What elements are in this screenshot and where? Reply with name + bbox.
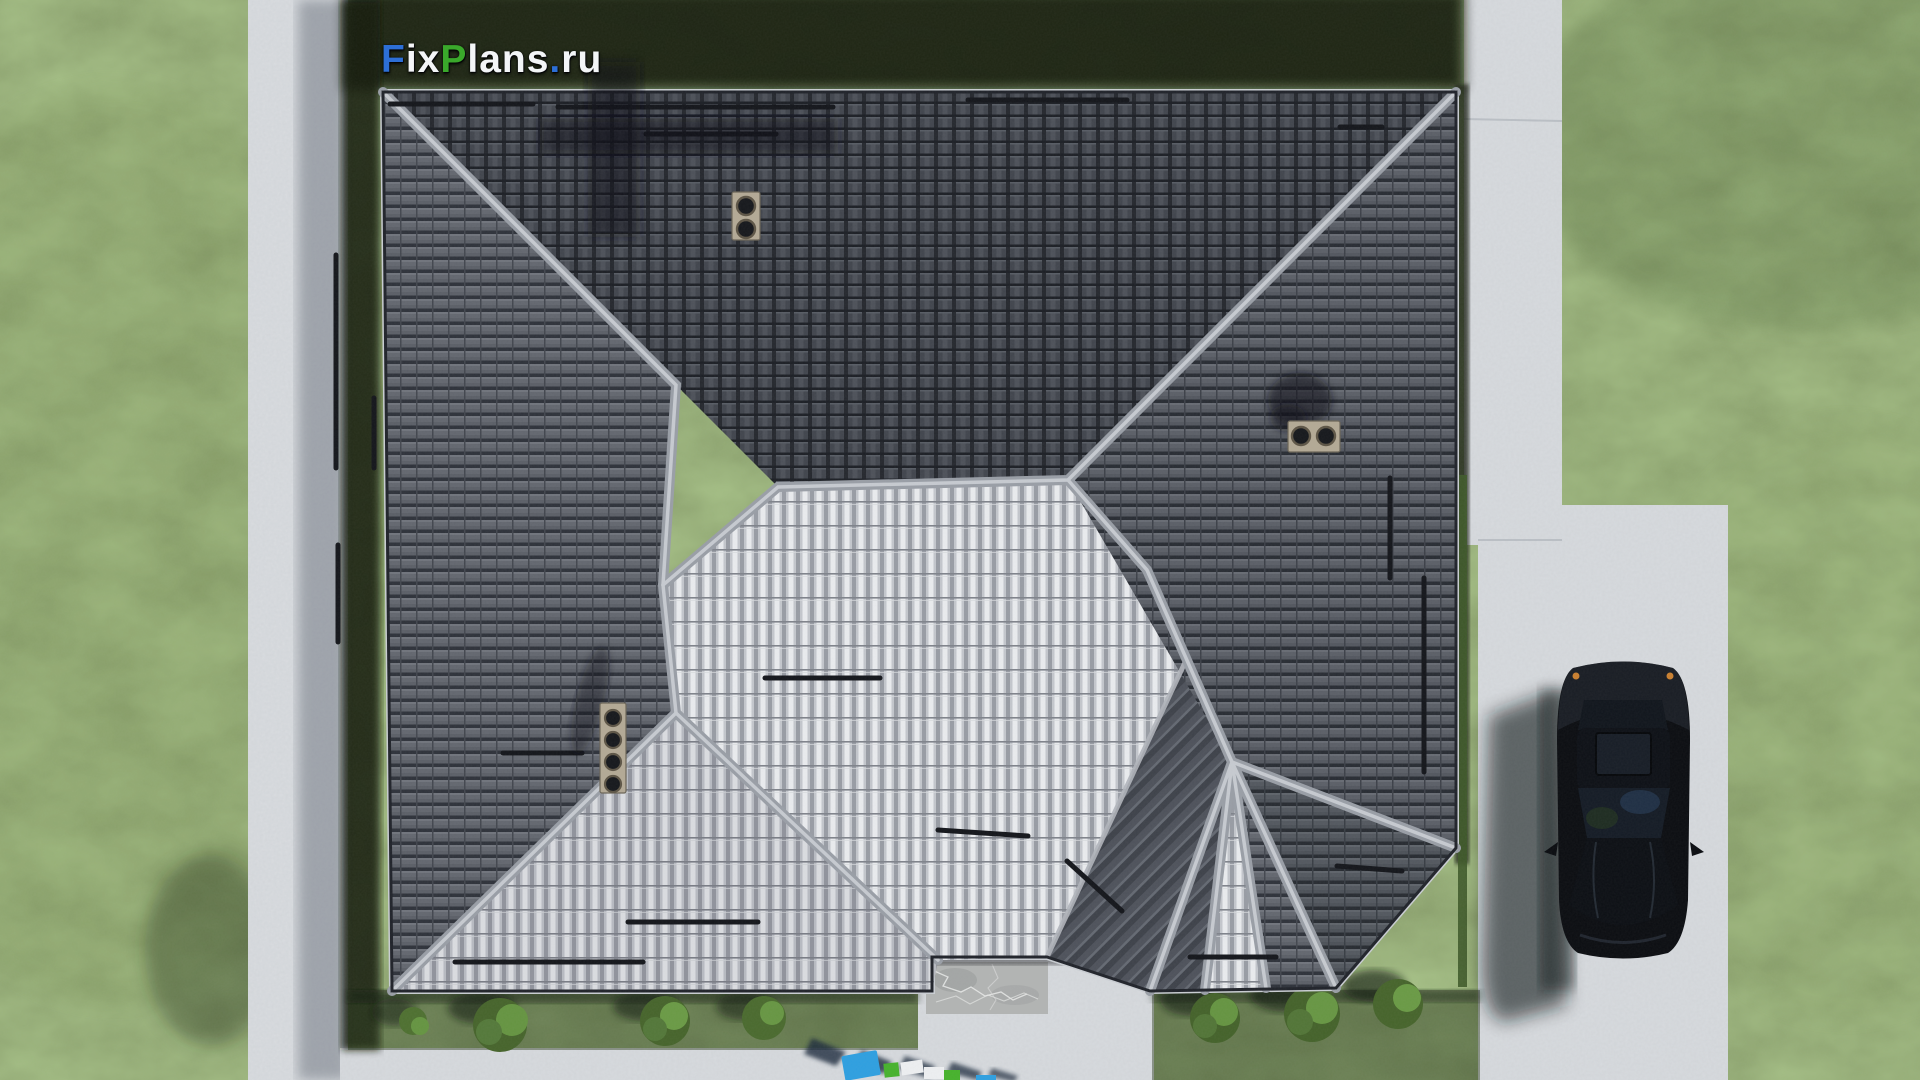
site-plan-render: FixPlans.ru [0, 0, 1920, 1080]
render-grain [0, 0, 1920, 1080]
logo-part: lans [467, 40, 549, 79]
logo-part: P [440, 40, 467, 79]
logo-part: ru [561, 40, 602, 79]
scene-svg [0, 0, 1920, 1080]
logo-part: . [549, 40, 561, 79]
logo-watermark: FixPlans.ru [381, 40, 602, 79]
logo-part: ix [406, 40, 441, 79]
logo-part: F [381, 40, 406, 79]
